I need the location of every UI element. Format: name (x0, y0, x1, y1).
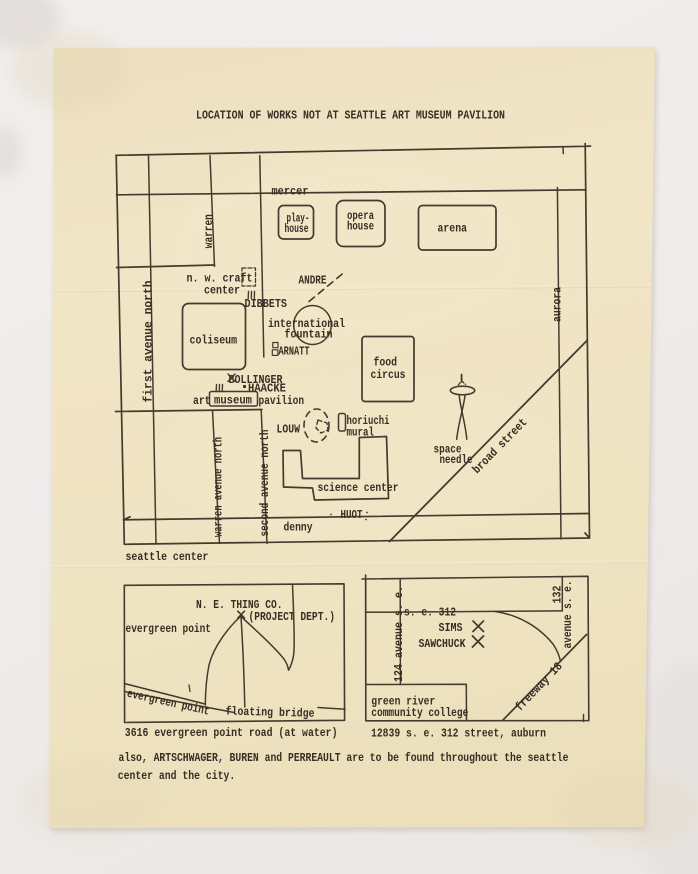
svg-text:science center: science center (318, 481, 399, 495)
svg-text:coliseum: coliseum (190, 334, 238, 348)
svg-text:SAWCHUCK: SAWCHUCK (419, 637, 467, 651)
svg-text:fountain: fountain (285, 328, 333, 342)
svg-text:LOUW: LOUW (277, 423, 301, 437)
svg-text:evergreen point: evergreen point (126, 622, 212, 636)
svg-text:warren: warren (202, 214, 216, 248)
svg-text:arena: arena (438, 222, 468, 236)
svg-text:124 avenue s. e.: 124 avenue s. e. (392, 586, 406, 682)
svg-text:DIBBETS: DIBBETS (245, 297, 288, 311)
svg-text:3616 evergreen point road (at: 3616 evergreen point road (at water) (125, 726, 338, 740)
svg-text:avenue s. e.: avenue s. e. (561, 581, 575, 649)
svg-text:house: house (347, 220, 374, 234)
svg-text:HUOT: HUOT (341, 508, 363, 522)
svg-text:community college: community college (371, 706, 468, 720)
svg-text:first avenue north: first avenue north (142, 281, 156, 403)
svg-text:floating bridge: floating bridge (225, 705, 314, 721)
svg-text:LOCATION OF WORKS NOT AT SEATT: LOCATION OF WORKS NOT AT SEATTLE ART MUS… (196, 109, 505, 123)
svg-text:center: center (204, 284, 240, 298)
svg-text:(PROJECT DEPT.): (PROJECT DEPT.) (249, 610, 336, 624)
svg-text:warren avenue north: warren avenue north (212, 437, 226, 537)
svg-text:art: art (193, 394, 211, 408)
svg-text:needle: needle (440, 453, 473, 467)
svg-text:center and the city.: center and the city. (118, 769, 236, 783)
svg-text:second avenue north: second avenue north (258, 430, 272, 537)
svg-text:also, ARTSCHWAGER, BUREN and P: also, ARTSCHWAGER, BUREN and PERREAULT a… (119, 751, 569, 765)
svg-text:seattle center: seattle center (126, 550, 209, 564)
svg-text:SIMS: SIMS (439, 621, 463, 635)
svg-text:mercer: mercer (272, 185, 309, 199)
svg-text:aurora: aurora (551, 287, 565, 322)
svg-text:circus: circus (371, 368, 406, 382)
svg-text:denny: denny (284, 521, 313, 535)
svg-text:ARNATT: ARNATT (279, 345, 310, 359)
svg-text:ANDRE: ANDRE (299, 274, 327, 288)
svg-text:house: house (285, 222, 309, 236)
svg-text:12839 s. e. 312 street, auburn: 12839 s. e. 312 street, auburn (371, 727, 546, 741)
svg-text:s. e. 312: s. e. 312 (404, 606, 456, 620)
svg-text:pavilion: pavilion (259, 394, 305, 408)
